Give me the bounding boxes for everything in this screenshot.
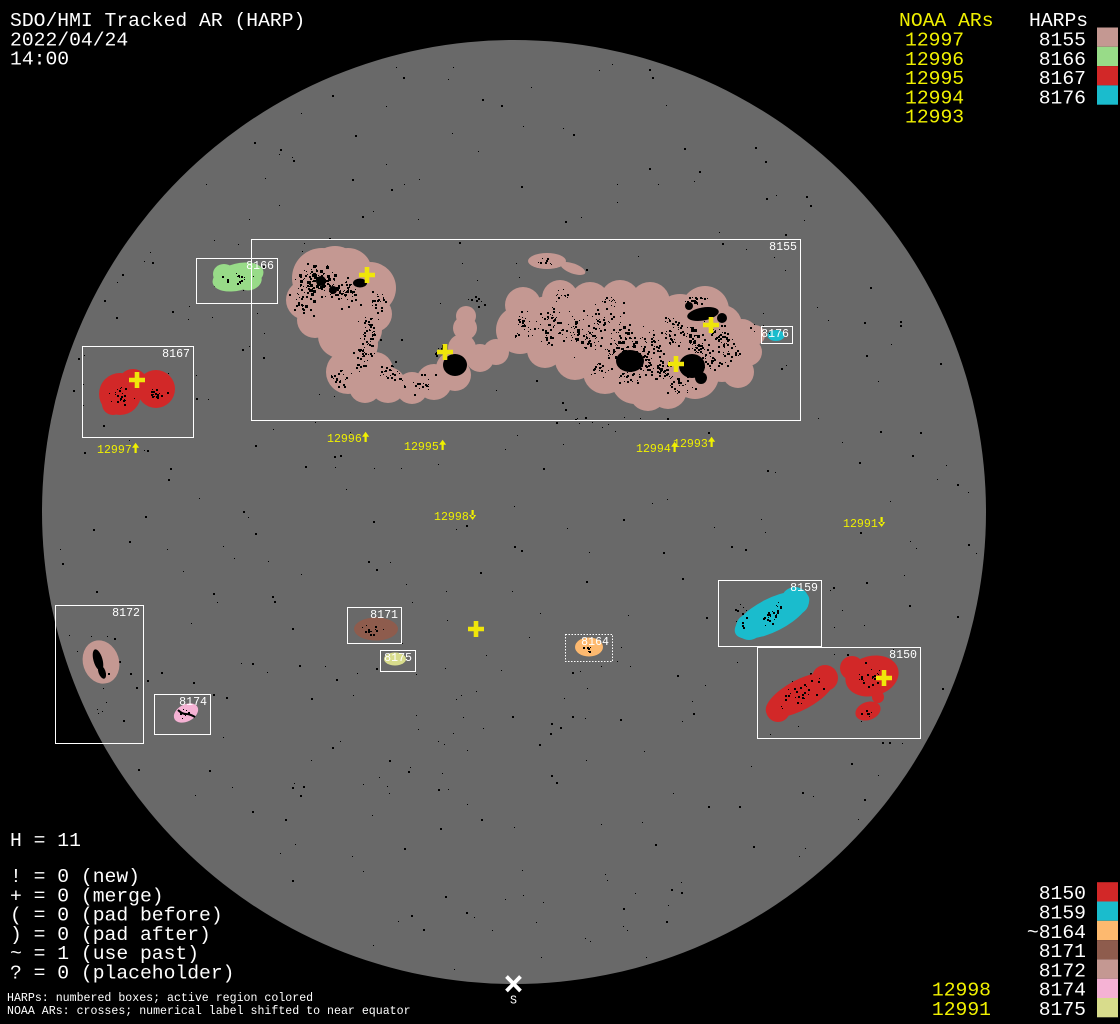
svg-text:8164: 8164 bbox=[581, 636, 609, 649]
svg-text:8167: 8167 bbox=[162, 348, 190, 361]
svg-text:12995: 12995 bbox=[404, 441, 439, 454]
svg-text:8175: 8175 bbox=[384, 652, 412, 665]
svg-text:HARPs: numbered boxes; active: HARPs: numbered boxes; active region col… bbox=[7, 992, 313, 1005]
svg-text:8155: 8155 bbox=[769, 241, 797, 254]
svg-text:S: S bbox=[510, 995, 517, 1008]
svg-text:14:00: 14:00 bbox=[10, 49, 69, 71]
svg-text:NOAA ARs: crosses; numerical l: NOAA ARs: crosses; numerical label shift… bbox=[7, 1005, 411, 1018]
svg-text:8176: 8176 bbox=[1039, 87, 1086, 109]
svg-text:12996: 12996 bbox=[327, 433, 362, 446]
svg-text:12993: 12993 bbox=[673, 438, 708, 451]
svg-text:12991: 12991 bbox=[843, 518, 878, 531]
svg-text:8166: 8166 bbox=[246, 260, 274, 273]
svg-text:12994: 12994 bbox=[636, 443, 671, 456]
svg-text:H = 11: H = 11 bbox=[10, 830, 81, 852]
svg-text:? = 0 (placeholder): ? = 0 (placeholder) bbox=[10, 963, 234, 985]
svg-text:12991: 12991 bbox=[932, 999, 991, 1021]
svg-text:8172: 8172 bbox=[112, 607, 140, 620]
svg-text:8175: 8175 bbox=[1039, 999, 1086, 1021]
svg-text:8171: 8171 bbox=[370, 609, 398, 622]
svg-text:12998: 12998 bbox=[434, 511, 469, 524]
svg-text:8159: 8159 bbox=[790, 582, 818, 595]
svg-text:12993: 12993 bbox=[905, 107, 964, 129]
svg-text:8174: 8174 bbox=[179, 696, 207, 709]
svg-text:8176: 8176 bbox=[761, 328, 789, 341]
svg-text:8150: 8150 bbox=[889, 649, 917, 662]
svg-text:12997: 12997 bbox=[97, 444, 132, 457]
